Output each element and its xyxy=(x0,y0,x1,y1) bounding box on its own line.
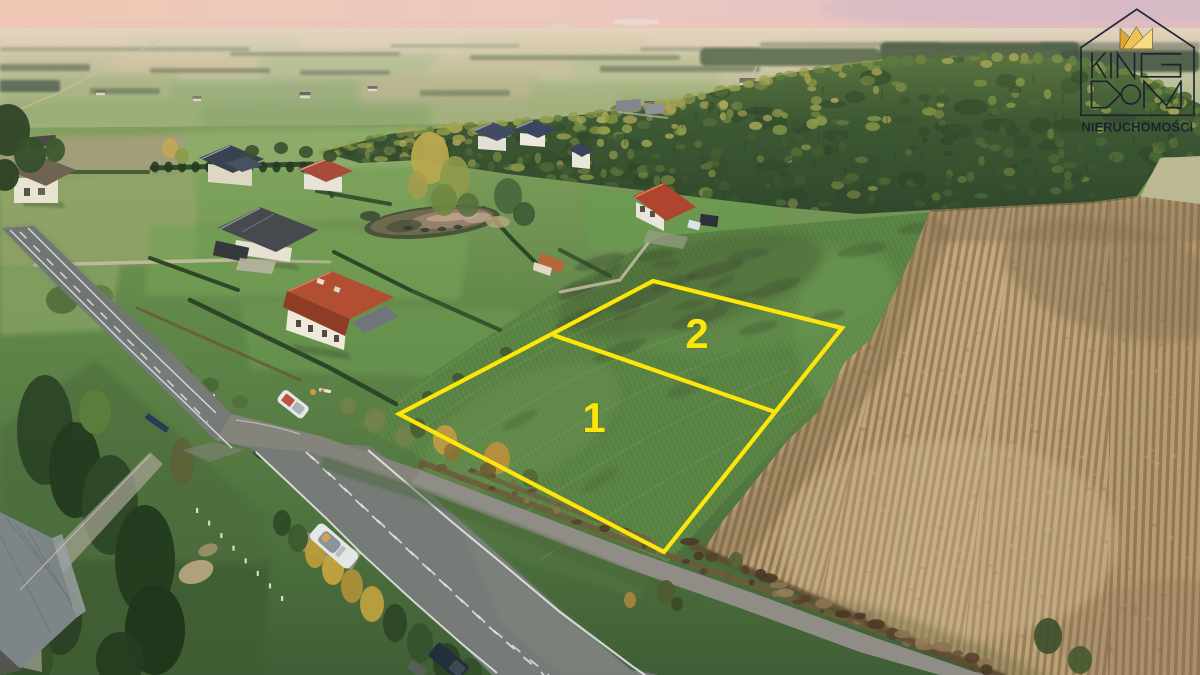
svg-text:1: 1 xyxy=(582,394,605,441)
svg-text:2: 2 xyxy=(685,310,708,357)
svg-text:NIERUCHOMOŚCI: NIERUCHOMOŚCI xyxy=(1082,120,1194,135)
